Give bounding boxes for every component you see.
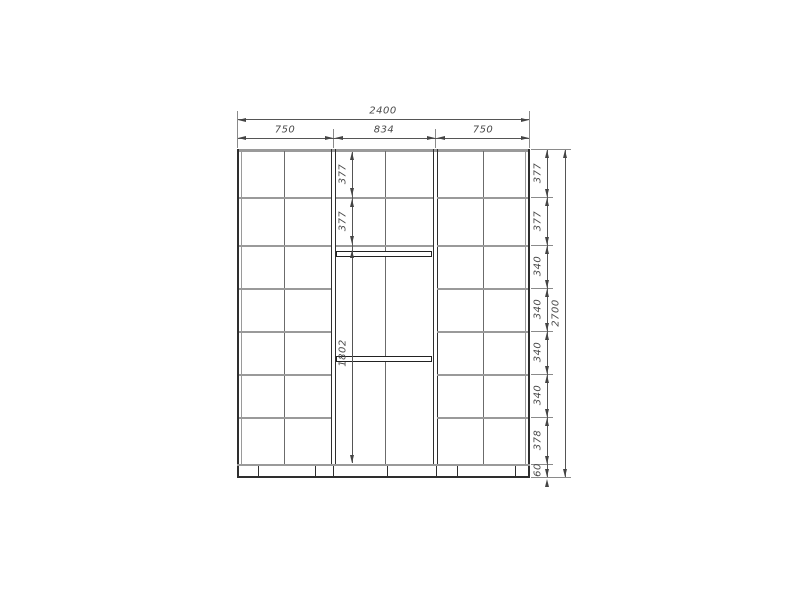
shelf-line xyxy=(239,374,331,376)
arrowhead xyxy=(545,418,549,426)
cabinet-bottom-shelf xyxy=(237,464,530,466)
dim-label-section-left: 750 xyxy=(275,125,296,136)
dimension-line-sections xyxy=(238,138,529,139)
shelf-line xyxy=(239,197,331,199)
extension-line xyxy=(531,417,553,418)
plinth-foot-tick xyxy=(515,466,516,476)
arrowhead xyxy=(350,236,354,244)
dim-label-middle-1: 377 xyxy=(338,164,349,185)
arrowhead xyxy=(545,189,549,197)
arrowhead xyxy=(563,469,567,477)
arrowhead xyxy=(350,199,354,207)
arrowhead xyxy=(521,136,529,140)
shelf-line xyxy=(437,417,528,419)
cabinet-top-edge xyxy=(237,149,530,152)
extension-line xyxy=(529,111,530,148)
arrowhead xyxy=(437,136,445,140)
dim-label-plinth: 60 xyxy=(533,463,544,477)
dim-label-middle-3: 1802 xyxy=(338,339,349,366)
arrowhead xyxy=(545,479,549,487)
arrowhead xyxy=(545,289,549,297)
extension-line xyxy=(531,245,553,246)
shelf-line xyxy=(437,245,528,247)
arrowhead xyxy=(545,366,549,374)
wardrobe-elevation-drawing: 2400 750 834 750 377 377 340 340 340 340… xyxy=(0,0,800,600)
dim-label-section-right: 750 xyxy=(473,125,494,136)
arrowhead xyxy=(335,136,343,140)
dim-label-section-middle: 834 xyxy=(374,125,395,136)
plinth-foot-tick xyxy=(387,466,388,476)
extension-line xyxy=(531,331,553,332)
dim-label-row-1: 377 xyxy=(533,163,544,184)
arrowhead xyxy=(350,188,354,196)
dim-label-row-5: 340 xyxy=(533,342,544,363)
dim-label-row-3: 340 xyxy=(533,256,544,277)
shelf-line xyxy=(239,417,331,419)
plinth-foot-tick xyxy=(436,466,437,476)
cabinet-right-edge xyxy=(528,149,530,478)
extension-line xyxy=(531,197,553,198)
arrowhead xyxy=(545,150,549,158)
arrowhead xyxy=(427,136,435,140)
arrowhead xyxy=(350,250,354,258)
arrowhead xyxy=(545,469,549,477)
plinth-foot-tick xyxy=(457,466,458,476)
arrowhead xyxy=(545,280,549,288)
dimension-line-total-width xyxy=(238,119,529,120)
shelf-line xyxy=(437,331,528,333)
shelf-line xyxy=(239,288,331,290)
arrowhead xyxy=(545,198,549,206)
arrowhead xyxy=(545,456,549,464)
plinth-foot-tick xyxy=(258,466,259,476)
shelf-line xyxy=(336,245,433,247)
plinth-foot-tick xyxy=(315,466,316,476)
shelf-line xyxy=(239,245,331,247)
shelf-line xyxy=(437,374,528,376)
arrowhead xyxy=(350,455,354,463)
arrowhead xyxy=(350,152,354,160)
extension-line xyxy=(531,374,553,375)
arrowhead xyxy=(545,332,549,340)
dim-label-row-4: 340 xyxy=(533,299,544,320)
arrowhead xyxy=(563,150,567,158)
extension-line xyxy=(531,477,571,478)
dim-label-total-height: 2700 xyxy=(551,299,562,326)
plinth-base-line xyxy=(237,476,530,478)
plinth-foot-tick xyxy=(333,466,334,476)
arrowhead xyxy=(325,136,333,140)
arrowhead xyxy=(545,375,549,383)
dim-label-middle-2: 377 xyxy=(338,211,349,232)
arrowhead xyxy=(545,323,549,331)
arrowhead xyxy=(545,246,549,254)
section-divider-left xyxy=(331,149,332,464)
arrowhead xyxy=(521,118,529,122)
shelf-line xyxy=(437,197,528,199)
dimension-line-total-height xyxy=(565,150,566,477)
shelf-line xyxy=(437,288,528,290)
arrowhead xyxy=(545,409,549,417)
arrowhead xyxy=(238,118,246,122)
arrowhead xyxy=(238,136,246,140)
dim-label-row-2: 377 xyxy=(533,211,544,232)
shelf-line xyxy=(239,331,331,333)
extension-line xyxy=(237,111,238,148)
hanging-rail-lower xyxy=(336,356,432,362)
arrowhead xyxy=(545,237,549,245)
extension-line xyxy=(531,288,553,289)
dim-label-row-6: 340 xyxy=(533,385,544,406)
section-divider-right xyxy=(433,149,434,464)
dim-label-row-7: 378 xyxy=(533,430,544,451)
dim-label-total-width: 2400 xyxy=(369,106,396,117)
